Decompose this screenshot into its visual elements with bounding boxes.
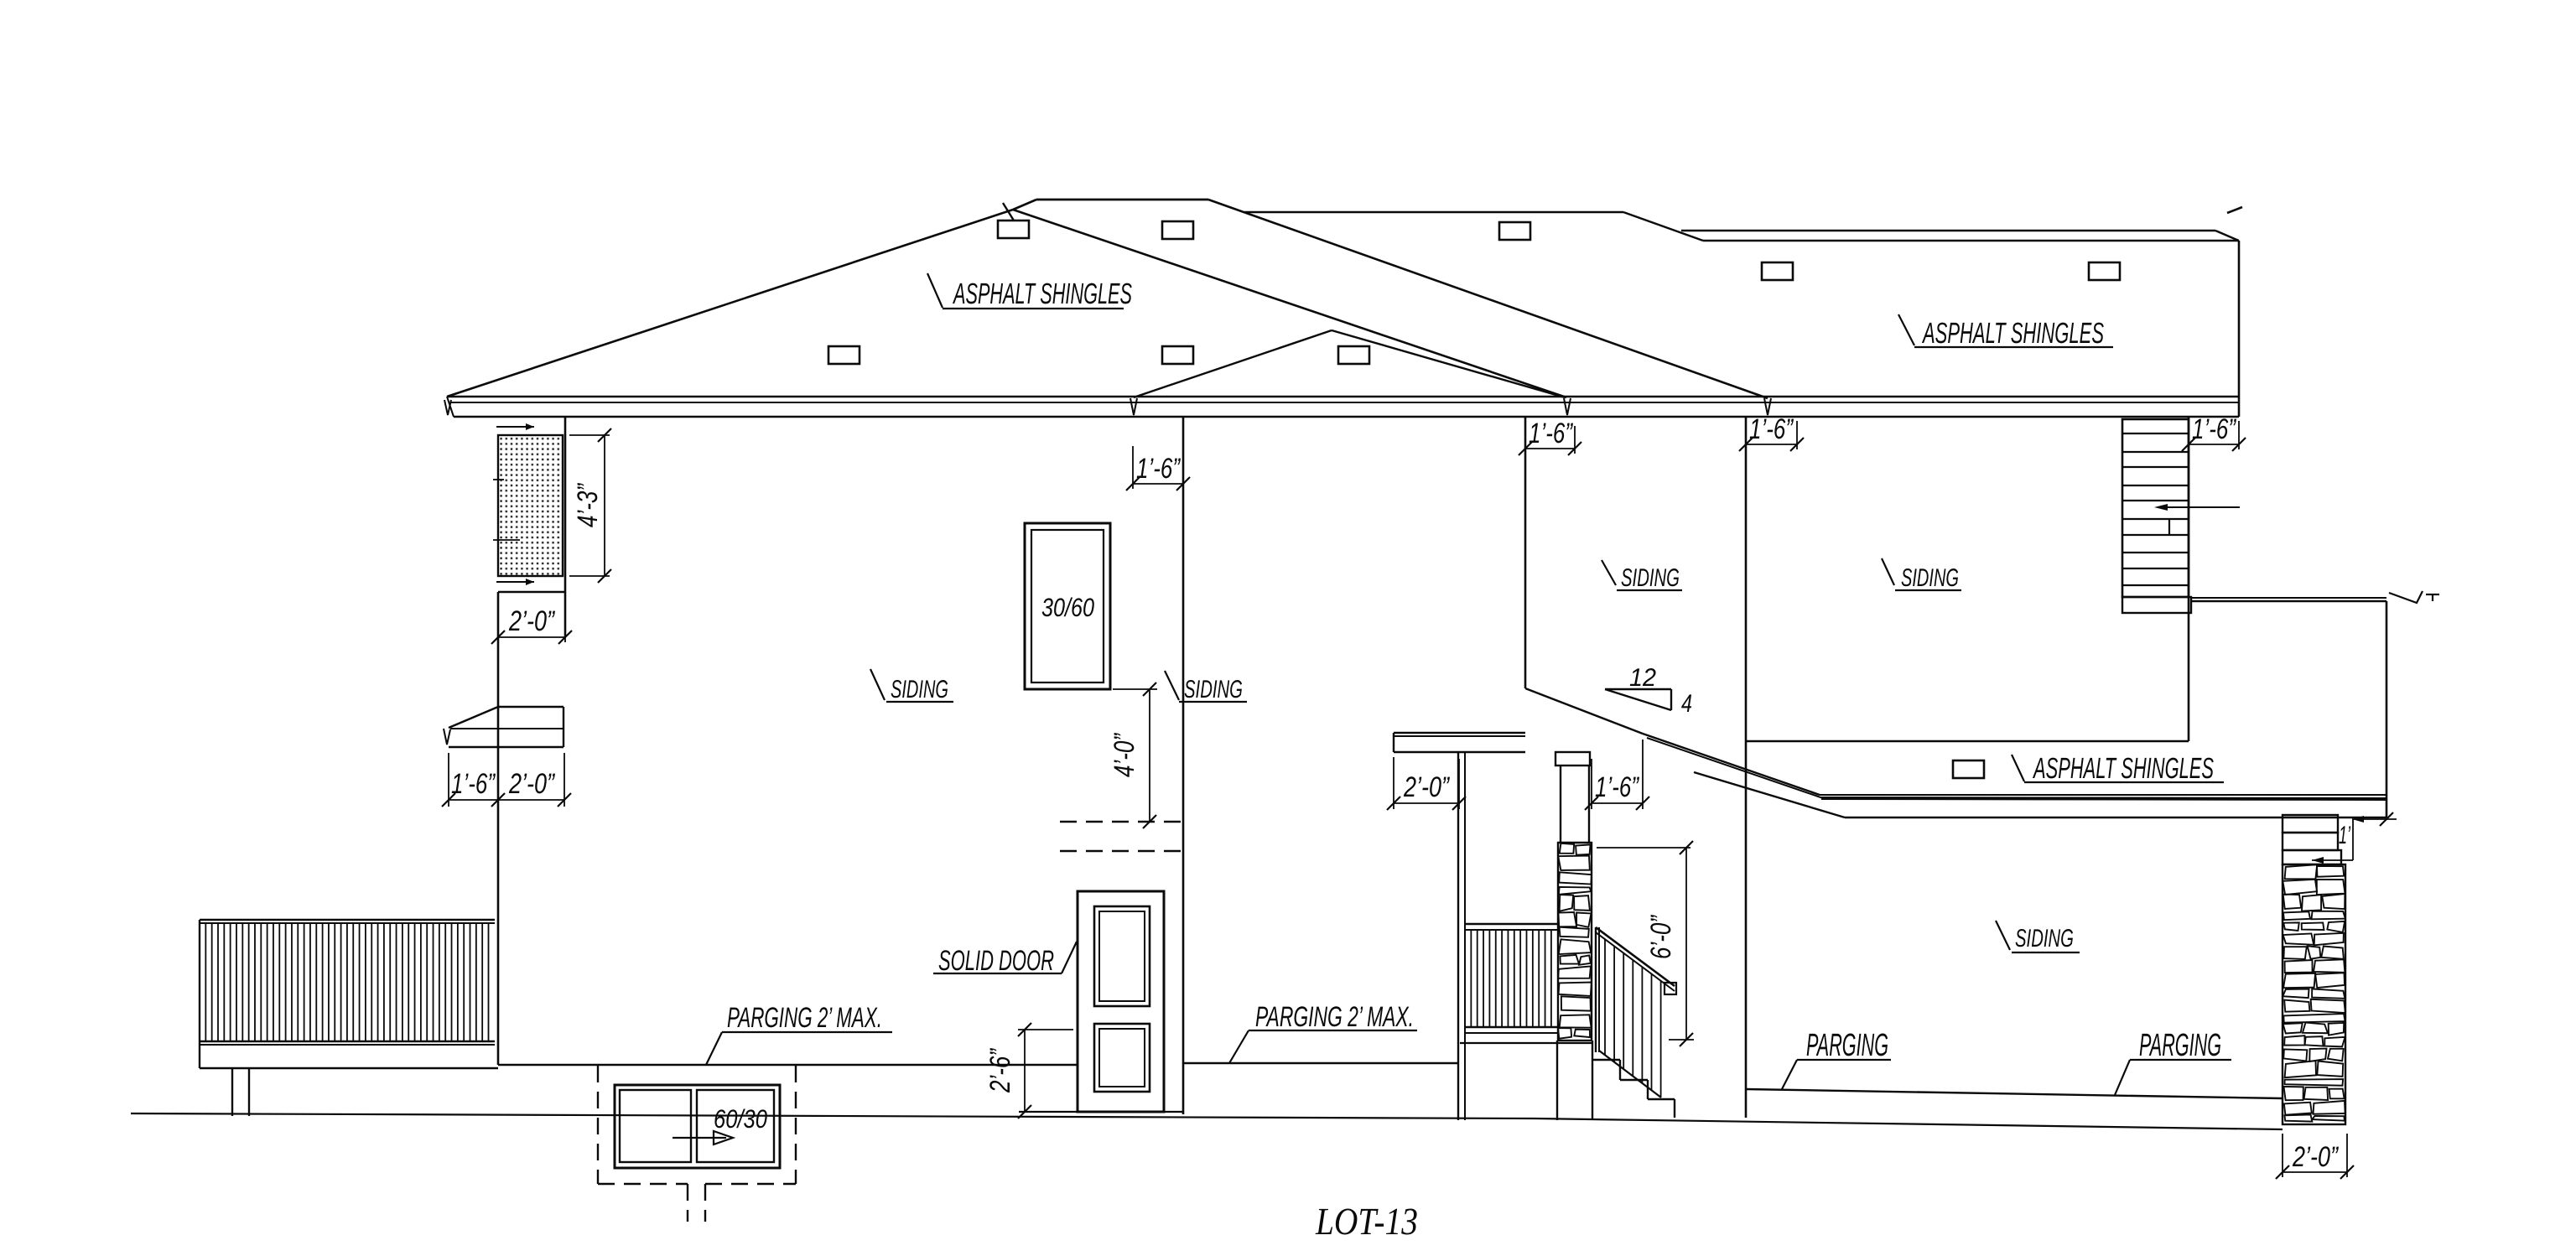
svg-text:PARGING 2’ MAX.: PARGING 2’ MAX.	[727, 1002, 882, 1034]
svg-text:1’-6”: 1’-6”	[1595, 771, 1639, 803]
svg-text:1’-6”: 1’-6”	[1136, 453, 1181, 485]
svg-text:30/60: 30/60	[1041, 593, 1094, 622]
svg-text:1’: 1’	[2339, 822, 2351, 849]
svg-text:SIDING: SIDING	[1621, 564, 1680, 592]
svg-text:SIDING: SIDING	[1184, 676, 1243, 703]
svg-text:2’-0”: 2’-0”	[508, 605, 555, 637]
svg-text:ASPHALT SHINGLES: ASPHALT SHINGLES	[2033, 752, 2214, 785]
svg-text:ASPHALT SHINGLES: ASPHALT SHINGLES	[953, 278, 1132, 310]
svg-text:4’-3”: 4’-3”	[572, 483, 604, 527]
svg-text:2’-0”: 2’-0”	[1403, 771, 1450, 803]
svg-text:2’-6”: 2’-6”	[984, 1048, 1016, 1093]
svg-text:2’-0”: 2’-0”	[2292, 1141, 2339, 1173]
svg-text:PARGING: PARGING	[2139, 1028, 2221, 1063]
svg-text:2’-0”: 2’-0”	[508, 768, 555, 800]
svg-text:ASPHALT SHINGLES: ASPHALT SHINGLES	[1922, 317, 2104, 350]
svg-text:60/30: 60/30	[714, 1104, 767, 1134]
svg-text:4: 4	[1681, 690, 1692, 718]
svg-text:SOLID DOOR: SOLID DOOR	[938, 945, 1054, 977]
svg-text:6’-0”: 6’-0”	[1645, 915, 1677, 959]
svg-text:SIDING: SIDING	[2015, 925, 2074, 952]
svg-text:PARGING 2’ MAX.: PARGING 2’ MAX.	[1255, 1001, 1414, 1033]
svg-text:1’-6”: 1’-6”	[1749, 413, 1794, 445]
svg-text:1’-6”: 1’-6”	[1529, 418, 1573, 449]
svg-text:1’-6”: 1’-6”	[451, 768, 496, 800]
svg-text:SIDING: SIDING	[891, 676, 948, 703]
svg-text:4’-0”: 4’-0”	[1109, 733, 1140, 777]
svg-text:12: 12	[1629, 664, 1656, 692]
svg-text:PARGING: PARGING	[1806, 1028, 1888, 1063]
svg-text:SIDING: SIDING	[1901, 564, 1959, 592]
svg-text:LOT-13: LOT-13	[1315, 1200, 1418, 1243]
svg-text:1’-6”: 1’-6”	[2192, 413, 2236, 445]
